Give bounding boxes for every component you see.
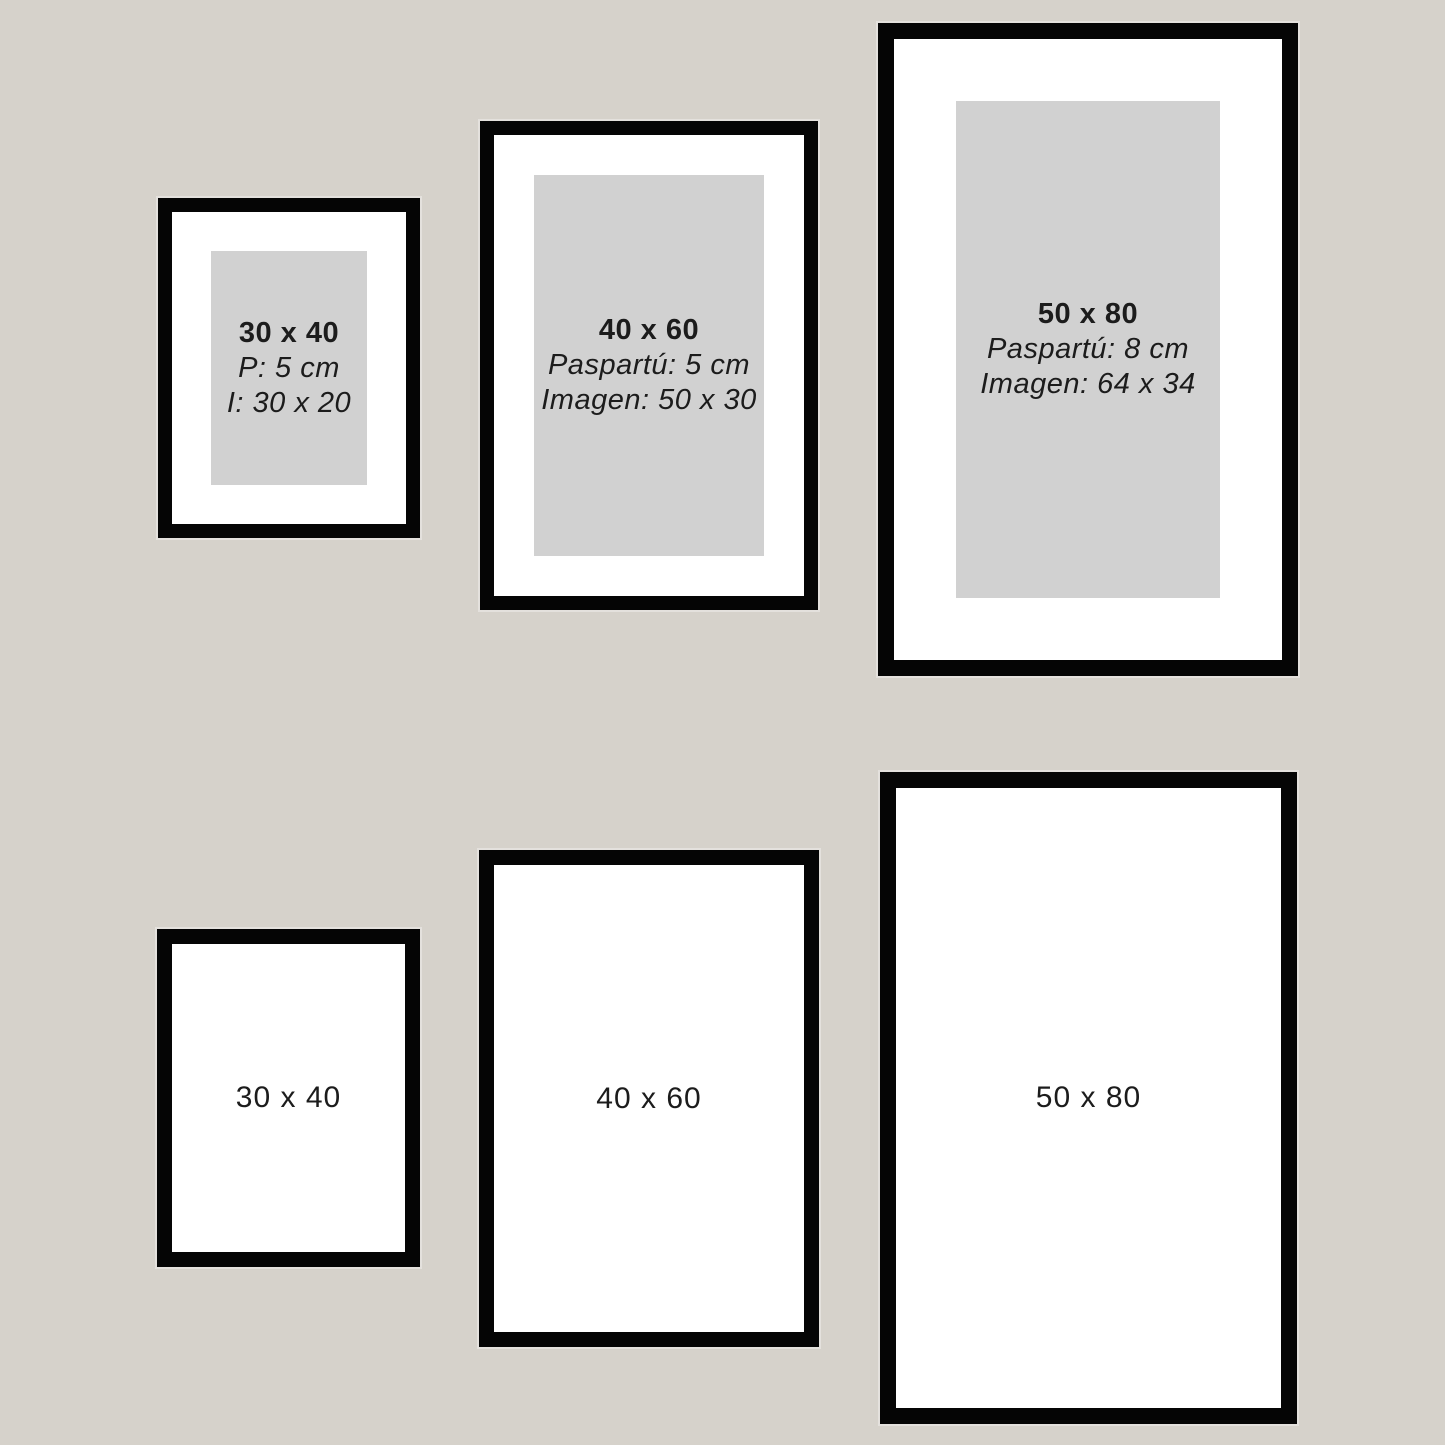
mat-width-label: P: 5 cm xyxy=(227,351,351,386)
frame-caption: 50 x 80 Paspartú: 8 cm Imagen: 64 x 34 xyxy=(980,297,1195,402)
frame-size-label: 30 x 40 xyxy=(227,316,351,351)
image-size-label: Imagen: 50 x 30 xyxy=(541,383,756,418)
matted-frame-50x80: 50 x 80 Paspartú: 8 cm Imagen: 64 x 34 xyxy=(878,23,1298,676)
plain-frame-50x80: 50 x 80 xyxy=(880,772,1297,1424)
image-placeholder: 40 x 60 Paspartú: 5 cm Imagen: 50 x 30 xyxy=(534,175,764,556)
frame-size-label: 30 x 40 xyxy=(236,1081,341,1115)
plain-frame-30x40: 30 x 40 xyxy=(157,929,420,1267)
matted-frame-40x60: 40 x 60 Paspartú: 5 cm Imagen: 50 x 30 xyxy=(480,121,818,610)
frame-size-label: 40 x 60 xyxy=(596,1082,701,1116)
matted-frame-30x40: 30 x 40 P: 5 cm I: 30 x 20 xyxy=(158,198,420,538)
frame-size-label: 40 x 60 xyxy=(541,313,756,348)
frame-size-label: 50 x 80 xyxy=(980,297,1195,332)
image-placeholder: 50 x 80 Paspartú: 8 cm Imagen: 64 x 34 xyxy=(956,101,1220,598)
mat-width-label: Paspartú: 5 cm xyxy=(541,348,756,383)
image-placeholder: 30 x 40 P: 5 cm I: 30 x 20 xyxy=(211,251,367,485)
frame-sizes-infographic: 30 x 40 P: 5 cm I: 30 x 20 40 x 60 Paspa… xyxy=(0,0,1445,1445)
frame-caption: 40 x 60 Paspartú: 5 cm Imagen: 50 x 30 xyxy=(541,313,756,418)
frame-caption: 30 x 40 P: 5 cm I: 30 x 20 xyxy=(227,316,351,421)
mat-width-label: Paspartú: 8 cm xyxy=(980,332,1195,367)
plain-frame-40x60: 40 x 60 xyxy=(479,850,819,1347)
frame-size-label: 50 x 80 xyxy=(1036,1081,1141,1115)
image-size-label: I: 30 x 20 xyxy=(227,386,351,421)
image-size-label: Imagen: 64 x 34 xyxy=(980,367,1195,402)
